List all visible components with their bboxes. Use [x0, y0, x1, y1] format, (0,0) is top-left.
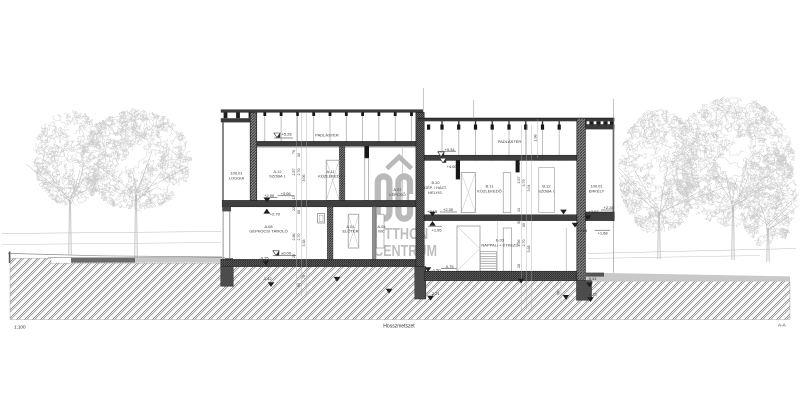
svg-text:-0.75: -0.75 — [445, 264, 455, 269]
svg-text:LÉPCSŐ: LÉPCSŐ — [389, 192, 405, 197]
svg-text:SZOBA I.: SZOBA I. — [538, 189, 555, 194]
svg-text:2.86: 2.86 — [292, 234, 296, 241]
svg-text:-1.50: -1.50 — [432, 267, 442, 272]
svg-text:2.70: 2.70 — [297, 234, 301, 241]
svg-text:NAPPALI + ÉTKEZŐ: NAPPALI + ÉTKEZŐ — [481, 243, 518, 248]
svg-text:30: 30 — [297, 153, 301, 157]
svg-text:+2.90: +2.90 — [264, 193, 275, 198]
svg-text:1:100: 1:100 — [14, 325, 26, 330]
svg-text:2.87: 2.87 — [517, 177, 521, 184]
svg-text:+2.70: +2.70 — [270, 211, 281, 216]
svg-text:+2.13: +2.13 — [427, 209, 438, 214]
svg-text:75: 75 — [302, 275, 306, 279]
svg-text:+1.95: +1.95 — [432, 228, 443, 233]
svg-text:PADLÁSTÉR: PADLÁSTÉR — [315, 133, 339, 138]
svg-text:2.86: 2.86 — [517, 240, 521, 247]
svg-text:3.06: 3.06 — [302, 175, 306, 182]
svg-text:+3.06: +3.06 — [281, 191, 292, 196]
svg-text:1.98: 1.98 — [533, 135, 537, 142]
svg-text:A-A: A-A — [778, 323, 787, 328]
svg-text:-2.21: -2.21 — [588, 291, 598, 296]
svg-text:60: 60 — [297, 210, 301, 214]
svg-text:GÉPKOCSI TÁROLÓ: GÉPKOCSI TÁROLÓ — [249, 229, 287, 234]
svg-text:60: 60 — [522, 223, 526, 227]
svg-text:±0.00: ±0.00 — [281, 250, 292, 255]
svg-text:60: 60 — [557, 291, 561, 295]
svg-text:22: 22 — [292, 207, 296, 211]
svg-text:ERKÉLY: ERKÉLY — [589, 189, 605, 194]
svg-text:14: 14 — [517, 161, 521, 165]
svg-text:KÖZLEKEDŐ: KÖZLEKEDŐ — [477, 189, 501, 194]
svg-text:LOGGIA: LOGGIA — [229, 175, 245, 180]
svg-text:2.87: 2.87 — [292, 169, 296, 176]
svg-text:-2.21: -2.21 — [431, 291, 441, 296]
svg-text:90: 90 — [297, 283, 301, 287]
svg-text:+5.28: +5.28 — [282, 132, 293, 137]
svg-text:28: 28 — [292, 254, 296, 258]
svg-text:-0.25: -0.25 — [260, 256, 270, 261]
svg-text:PADLÁSTÉR: PADLÁSTÉR — [498, 139, 522, 144]
svg-text:+1.68: +1.68 — [598, 230, 609, 235]
svg-text:50: 50 — [517, 220, 521, 224]
svg-text:13: 13 — [292, 196, 296, 200]
svg-text:13: 13 — [517, 208, 521, 212]
svg-text:+1.85: +1.85 — [577, 228, 588, 233]
svg-text:3.04: 3.04 — [527, 185, 531, 192]
svg-text:-1.42: -1.42 — [263, 276, 273, 281]
svg-text:76: 76 — [292, 150, 296, 154]
svg-text:+4.00: +4.00 — [447, 164, 458, 169]
svg-text:Hosszmetszet: Hosszmetszet — [383, 324, 415, 330]
svg-text:2.70: 2.70 — [297, 169, 301, 176]
svg-text:SZOBA I.: SZOBA I. — [269, 174, 286, 179]
svg-text:28: 28 — [517, 264, 521, 268]
svg-text:+2.07: +2.07 — [589, 209, 600, 214]
svg-text:+2.30: +2.30 — [443, 207, 454, 212]
svg-text:3.68: 3.68 — [527, 246, 531, 253]
svg-text:+2.28: +2.28 — [604, 205, 615, 210]
svg-text:WC: WC — [378, 229, 385, 234]
svg-text:3.38: 3.38 — [302, 240, 306, 247]
svg-text:KÖZLEKEDŐ: KÖZLEKEDŐ — [318, 174, 342, 179]
svg-text:HELYIS.: HELYIS. — [428, 190, 443, 195]
svg-text:2.70: 2.70 — [522, 240, 526, 247]
svg-text:-0.41: -0.41 — [588, 276, 598, 281]
svg-text:3.79: 3.79 — [522, 180, 526, 187]
svg-text:ELŐTÉR: ELŐTÉR — [342, 229, 358, 234]
